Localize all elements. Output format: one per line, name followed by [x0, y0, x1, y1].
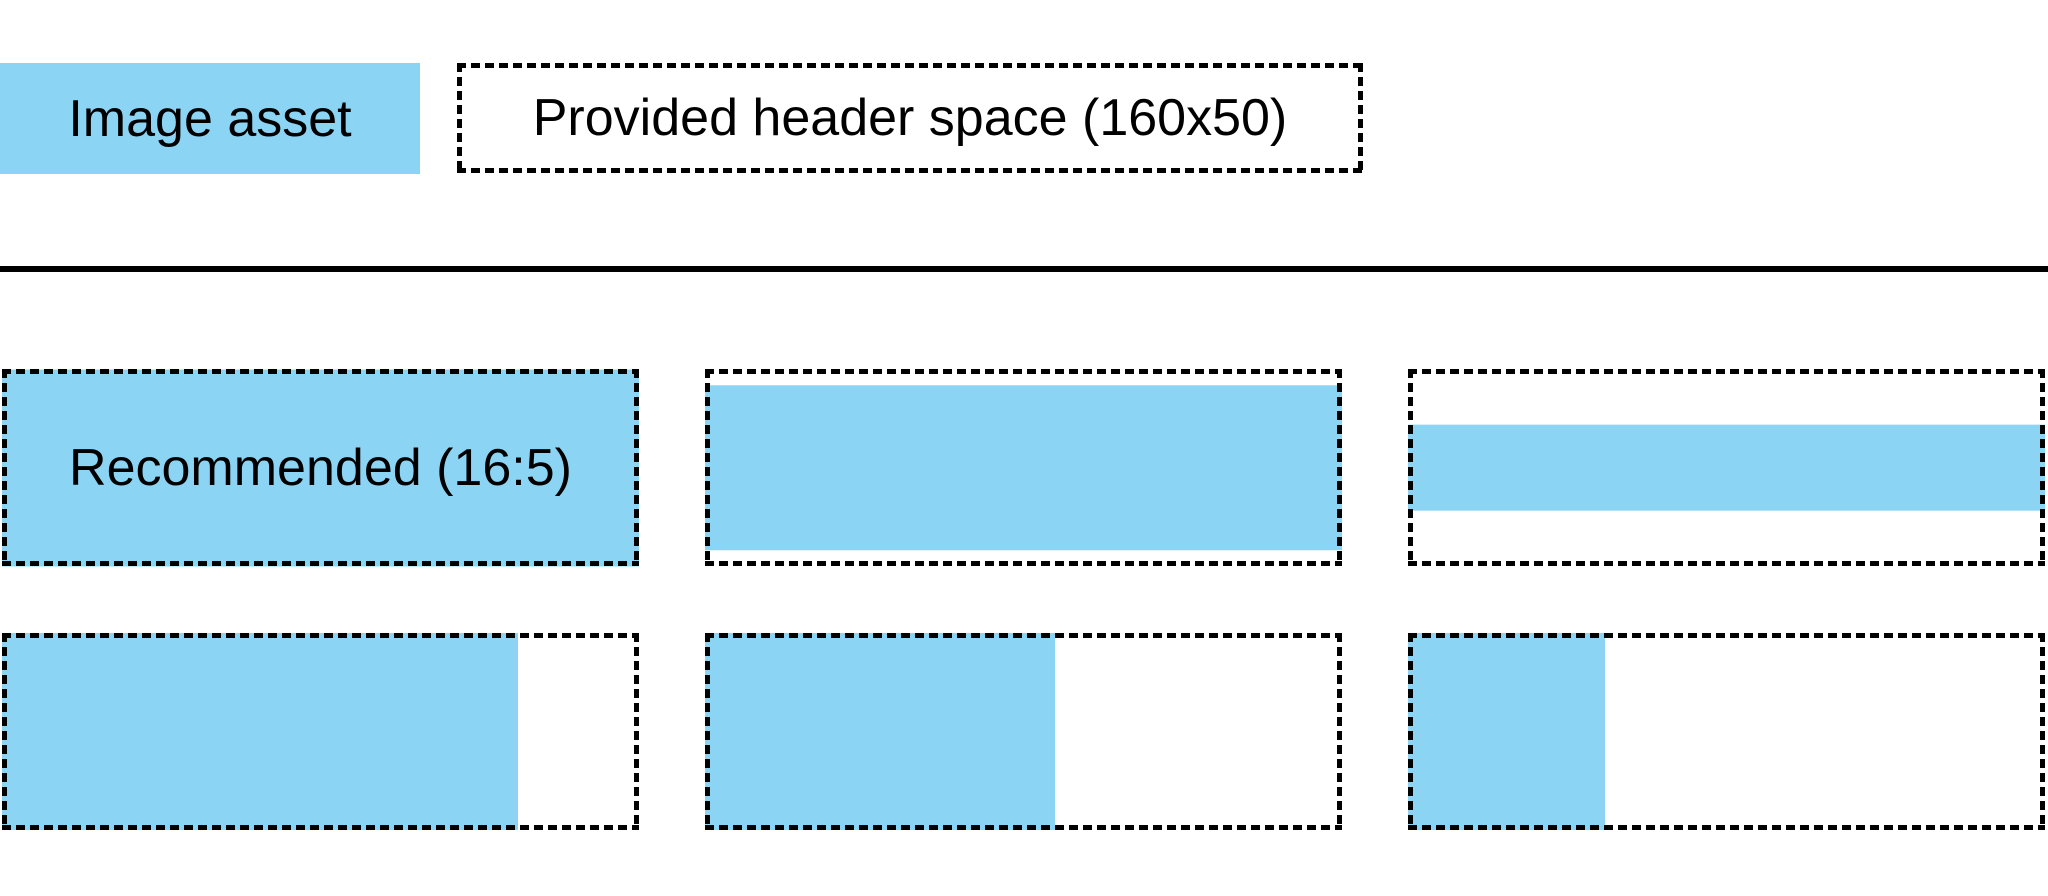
legend-image-asset-label: Image asset	[68, 93, 351, 145]
example-box-thin-strip-image	[1408, 369, 2045, 566]
image-asset-fill	[705, 385, 1342, 550]
section-divider-line	[0, 266, 2048, 272]
example-box-medium-image	[705, 633, 1342, 830]
recommended-ratio-label: Recommended (16:5)	[2, 369, 639, 566]
legend-header-space-box: Provided header space (160x50)	[457, 63, 1363, 173]
example-box-narrow-image	[1408, 633, 2045, 830]
legend-header-space-label: Provided header space (160x50)	[533, 92, 1287, 144]
example-box-wide-image	[2, 633, 639, 830]
example-box-shorter-image	[705, 369, 1342, 566]
image-asset-fill	[1408, 424, 2045, 511]
example-box-recommended-16x5: Recommended (16:5)	[2, 369, 639, 566]
image-asset-sizing-diagram: Image asset Provided header space (160x5…	[0, 0, 2048, 896]
image-asset-fill	[705, 633, 1055, 830]
legend-image-asset-swatch: Image asset	[0, 63, 420, 174]
image-asset-fill	[1408, 633, 1605, 830]
image-asset-fill	[2, 633, 518, 830]
